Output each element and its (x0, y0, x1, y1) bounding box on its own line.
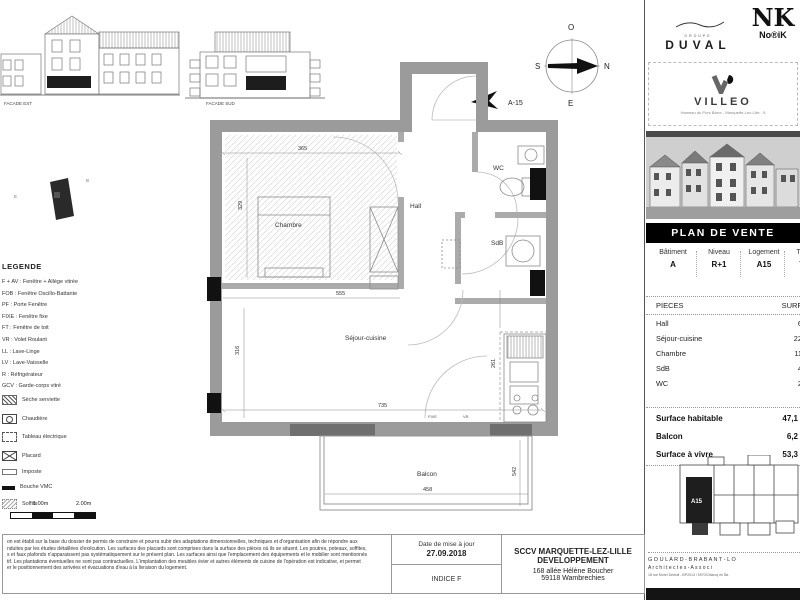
villeo-name: VILLEO (694, 96, 752, 108)
legend-item: FIXE : Fenêtre fixe (2, 314, 110, 320)
floor-plan: Chambre Hall WC SdB Séjour-cuisine Balco… (195, 50, 575, 520)
disclaimer-line: nduites par les études détaillées d'exéc… (7, 546, 387, 553)
room-label-chambre: Chambre (275, 222, 302, 229)
architect-block: G O U L A R D - B R A B A N T - L O A r … (648, 552, 800, 577)
dim-365: 365 (298, 146, 307, 152)
table-row: SdB4,3 (646, 364, 800, 373)
legend-item: R : Réfrigérateur (2, 372, 110, 378)
dim-542: 542 (512, 467, 518, 476)
chaudiere-icon (2, 414, 17, 424)
room-label-wc: WC (493, 165, 504, 172)
architect-address: 18 rue Morel Dewulf - BP2013 / 59703 Mar… (648, 573, 800, 577)
pieces-title: PIECES (656, 301, 684, 310)
scale-label-1m: 1.00m (33, 501, 48, 507)
legend-title: LEGENDE (2, 262, 110, 271)
site-key-building (50, 178, 74, 220)
type-value: T2 (786, 260, 800, 269)
legend: LEGENDE F + AV : Fenêtre + Allège vitrée… (2, 262, 110, 517)
piece-name: Chambre (656, 349, 686, 358)
legend-item: Imposte (22, 469, 42, 475)
date-label: Date de mise à jour (418, 541, 474, 548)
legend-item: Chaudière (22, 416, 47, 422)
footer-black-bar (646, 588, 800, 600)
legend-item: Tableau électrique (22, 434, 67, 440)
tableau-electrique-icon (2, 432, 17, 442)
summary-value: 47,1 (782, 414, 798, 423)
company-name-2: DEVELOPPEMENT (537, 556, 609, 565)
piece-name: WC (656, 379, 668, 388)
dim-735: 735 (378, 403, 387, 409)
plan-de-vente-document: { "facades": {"est": "FACADE EST", "sud"… (0, 0, 800, 600)
table-row: Hall6,7 (646, 319, 800, 328)
unit-header-table: Bâtiment A Niveau R+1 Logement A15 Type … (646, 249, 800, 281)
indice-label: INDICE F (392, 565, 501, 593)
dim-329: 329 (238, 201, 244, 210)
disclaimer-text: on est établi sur la base du dossier de … (3, 535, 392, 593)
legend-item: PF : Porte Fenêtre (2, 302, 110, 308)
legend-item: Sèche serviette (22, 397, 60, 403)
piece-surface: 22,6 (794, 334, 800, 343)
window-label-vr: VR (463, 414, 469, 419)
key-plan-unit-label: A15 (691, 499, 703, 505)
legend-item: FOB : Fenêtre Oscillo-Battante (2, 291, 110, 297)
legend-item: F + AV : Fenêtre + Allège vitrée (2, 279, 110, 285)
table-row: Chambre11,4 (646, 349, 800, 358)
piece-name: SdB (656, 364, 670, 373)
summary-value: 6,2 (787, 432, 798, 441)
title-block: on est établi sur la base du dossier de … (2, 534, 645, 594)
building-render-image (646, 131, 800, 219)
legend-item: GCV : Garde-corps vitré (2, 383, 110, 389)
facade-est-drawing (0, 16, 180, 95)
table-row: WC2,0 (646, 379, 800, 388)
duval-logo: GROUPE DUVAL (652, 16, 744, 52)
logement-label: Logement (742, 249, 786, 256)
niveau-label: Niveau (698, 249, 740, 256)
scale-label-2m: 2.00m (76, 501, 91, 507)
summary-row: Surface habitable47,1 (656, 414, 798, 423)
company-name-1: SCCV MARQUETTE-LEZ-LILLE (514, 547, 632, 556)
room-label-sdb: SdB (491, 240, 503, 247)
type-col: Type T2 (786, 249, 800, 269)
date-value: 27.09.2018 (426, 549, 466, 558)
window-label-fixe: FIXE (428, 414, 437, 419)
summary-label: Balcon (656, 432, 683, 441)
pieces-table-header: PIECES SURFACES (646, 296, 800, 315)
site-key-map: B E (8, 168, 108, 238)
dim-316: 316 (235, 346, 241, 355)
chambre-floor-hatch (225, 135, 397, 280)
nk-monogram: NK (748, 6, 798, 30)
logement-value: A15 (742, 260, 786, 269)
piece-surface: 11,4 (794, 349, 800, 358)
company-address-1: 168 allée Hélène Boucher (533, 568, 614, 575)
date-indice-box: Date de mise à jour 27.09.2018 INDICE F (392, 535, 502, 593)
compass-n: N (604, 62, 610, 71)
summary-row: Balcon6,2 (656, 432, 798, 441)
legend-item: LV : Lave-Vaisselle (2, 360, 110, 366)
villeo-subtitle: Hameau du Pont Blanc - Marquette-Lez-Lil… (681, 110, 766, 115)
developer-box: SCCV MARQUETTE-LEZ-LILLE DEVELOPPEMENT 1… (502, 535, 644, 593)
placard-icon (2, 451, 17, 461)
batiment-label: Bâtiment (650, 249, 696, 256)
towel-radiators (530, 168, 546, 296)
key-plan: A15 (650, 455, 800, 550)
dim-261: 261 (491, 359, 497, 368)
duval-wave-icon (668, 19, 728, 29)
disclaimer-line: tif. Les plantations éventuelles ne sont… (7, 559, 387, 566)
dim-458: 458 (423, 487, 432, 493)
imposte-icon (2, 469, 17, 475)
scale-bar (10, 512, 96, 519)
disclaimer-line: er le positionnement des arrivées et éva… (7, 565, 387, 572)
facade-est-label: FACADE EST (4, 101, 32, 106)
disclaimer-line: s et faux plafonds n'apparaissent pas sy… (7, 552, 387, 559)
piece-name: Hall (656, 319, 669, 328)
room-label-sejour: Séjour-cuisine (345, 335, 387, 342)
disclaimer-line: on est établi sur la base du dossier de … (7, 539, 387, 546)
dim-555: 555 (336, 291, 345, 297)
room-label-hall: Hall (410, 203, 422, 210)
site-letter-b: B (86, 178, 89, 183)
plan-de-vente-banner: PLAN DE VENTE (646, 223, 800, 243)
batiment-value: A (650, 260, 696, 269)
panel-divider (644, 0, 645, 600)
norik-logo: NK No®iK (748, 6, 798, 40)
duval-name: DUVAL (652, 38, 744, 52)
legend-item: Bouche VMC (20, 484, 52, 490)
site-letter-e: E (14, 194, 17, 199)
niveau-value: R+1 (698, 260, 740, 269)
logement-col: Logement A15 (742, 249, 786, 269)
legend-item: LL : Lave-Linge (2, 349, 110, 355)
legend-item: VR : Volet Roulant (2, 337, 110, 343)
seche-serviette-icon (2, 395, 17, 405)
soffite-icon (2, 499, 17, 509)
legend-item: FT : Fenêtre de toit (2, 325, 110, 331)
company-address-2: 59118 Wambrechies (541, 575, 604, 582)
legend-item: Placard (22, 453, 41, 459)
surfaces-title: SURFACES (782, 301, 800, 310)
architect-title: A r c h i t e c t e s - A s s o c i (648, 565, 800, 571)
piece-name: Séjour-cuisine (656, 334, 702, 343)
architect-name: G O U L A R D - B R A B A N T - L O (648, 557, 800, 563)
villeo-v-icon (710, 74, 736, 94)
niveau-col: Niveau R+1 (698, 249, 740, 269)
table-row: Séjour-cuisine22,6 (646, 334, 800, 343)
type-label: Type (786, 249, 800, 256)
compass-o: O (568, 23, 574, 32)
room-label-balcon: Balcon (417, 471, 437, 478)
batiment-col: Bâtiment A (650, 249, 696, 269)
bouche-vmc-icon (2, 486, 15, 490)
summary-label: Surface habitable (656, 414, 723, 423)
villeo-program-box: VILLEO Hameau du Pont Blanc - Marquette-… (648, 62, 798, 126)
